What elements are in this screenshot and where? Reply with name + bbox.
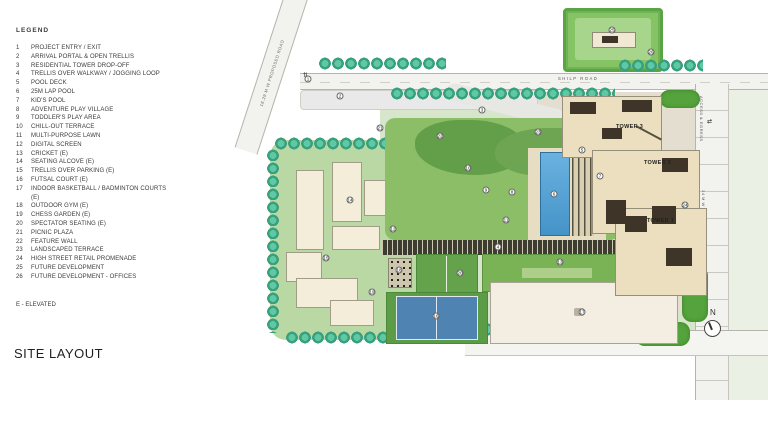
legend-item-label: INDOOR BASKETBALL / BADMINTON COURTS (E) <box>31 185 174 203</box>
plan-badge-7: 7 <box>597 173 604 180</box>
legend-item-1: 1PROJECT ENTRY / EXIT <box>16 44 174 53</box>
legend-item-label: DIGITAL SCREEN <box>31 141 174 150</box>
plan-badge-12: 12 <box>390 226 397 233</box>
legend-item-number: 11 <box>16 132 31 141</box>
legend-item-number: 16 <box>16 176 31 185</box>
legend-item-label: SPECTATOR SEATING (E) <box>31 220 174 229</box>
plan-badge-19: 19 <box>369 289 376 296</box>
legend-item-number: 5 <box>16 79 31 88</box>
legend-item-16: 16FUTSAL COURT (E) <box>16 176 174 185</box>
legend-item-number: 8 <box>16 106 31 115</box>
legend-item-6: 625M LAP POOL <box>16 88 174 97</box>
legend-item-label: FEATURE WALL <box>31 238 174 247</box>
legend-item-8: 8ADVENTURE PLAY VILLAGE <box>16 106 174 115</box>
legend-item-17: 17INDOOR BASKETBALL / BADMINTON COURTS (… <box>16 185 174 203</box>
legend-item-12: 12DIGITAL SCREEN <box>16 141 174 150</box>
site-layout-drawing: LEGEND 1PROJECT ENTRY / EXIT2ARRIVAL POR… <box>0 0 768 427</box>
legend-item-11: 11MULTI-PURPOSE LAWN <box>16 132 174 141</box>
compass-icon <box>704 320 721 337</box>
legend-item-label: ARRIVAL PORTAL & OPEN TRELLIS <box>31 53 174 62</box>
legend-item-2: 2ARRIVAL PORTAL & OPEN TRELLIS <box>16 53 174 62</box>
legend-item-number: 17 <box>16 185 31 194</box>
plan-badge-15: 15 <box>323 255 330 262</box>
plan-badge-16: 16 <box>433 313 440 320</box>
plan-badge-6: 6 <box>551 191 558 198</box>
legend-item-20: 20SPECTATOR SEATING (E) <box>16 220 174 229</box>
compass-north-label: N <box>710 308 716 317</box>
legend-item-number: 26 <box>16 273 31 282</box>
legend-item-label: TRELLIS OVER WALKWAY / JOGGING LOOP <box>31 70 174 79</box>
plan-badge-11: 11 <box>503 217 510 224</box>
legend-item-26: 26FUTURE DEVELOPMENT - OFFICES <box>16 273 174 282</box>
legend-item-label: FUTURE DEVELOPMENT <box>31 264 174 273</box>
legend-item-label: TODDLER'S PLAY AREA <box>31 114 174 123</box>
legend-note: E - ELEVATED <box>16 302 56 308</box>
legend-item-label: OUTDOOR GYM (E) <box>31 202 174 211</box>
legend-item-number: 24 <box>16 255 31 264</box>
legend-item-label: MULTI-PURPOSE LAWN <box>31 132 174 141</box>
legend-item-label: LANDSCAPED TERRACE <box>31 246 174 255</box>
legend-item-7: 7KID'S POOL <box>16 97 174 106</box>
plan-badge-13: 13 <box>557 259 564 266</box>
legend-item-label: TRELLIS OVER PARKING (E) <box>31 167 174 176</box>
legend-item-number: 4 <box>16 70 31 79</box>
plan-badge-25: 25 <box>609 27 616 34</box>
plan-badge-22: 22 <box>437 133 444 140</box>
plan-badge-8: 8 <box>509 189 516 196</box>
legend-item-21: 21PICNIC PLAZA <box>16 229 174 238</box>
legend-item-label: CHESS GARDEN (E) <box>31 211 174 220</box>
legend-item-number: 15 <box>16 167 31 176</box>
legend-item-label: PROJECT ENTRY / EXIT <box>31 44 174 53</box>
legend-item-number: 19 <box>16 211 31 220</box>
legend-item-label: RESIDENTIAL TOWER DROP-OFF <box>31 62 174 71</box>
legend-title: LEGEND <box>16 27 49 34</box>
plan-badge-3: 3 <box>479 107 486 114</box>
legend-item-label: CRICKET (E) <box>31 150 174 159</box>
legend-item-label: 25M LAP POOL <box>31 88 174 97</box>
legend-item-label: SEATING ALCOVE (E) <box>31 158 174 167</box>
legend-item-24: 24HIGH STREET RETAIL PROMENADE <box>16 255 174 264</box>
legend-item-number: 12 <box>16 141 31 150</box>
legend-item-number: 7 <box>16 97 31 106</box>
legend-item-number: 14 <box>16 158 31 167</box>
legend-item-number: 1 <box>16 44 31 53</box>
plan-badge-10: 10 <box>465 165 472 172</box>
plan-badge-14: 14 <box>347 197 354 204</box>
plan-badge-21: 21 <box>377 125 384 132</box>
legend-item-number: 13 <box>16 150 31 159</box>
legend-item-number: 20 <box>16 220 31 229</box>
legend-item-number: 23 <box>16 246 31 255</box>
site-plan: 18.29 M W PROPOSED ROAD SHILP ROAD ACCES… <box>230 0 768 400</box>
legend-item-label: POOL DECK <box>31 79 174 88</box>
page-title: SITE LAYOUT <box>14 346 103 361</box>
legend-item-number: 10 <box>16 123 31 132</box>
legend-item-23: 23LANDSCAPED TERRACE <box>16 246 174 255</box>
plan-badge-4: 4 <box>495 244 502 251</box>
legend-item-number: 3 <box>16 62 31 71</box>
plan-badge-17: 17 <box>579 309 586 316</box>
legend-item-18: 18OUTDOOR GYM (E) <box>16 202 174 211</box>
badges-layer: 1234567891011121314151617181920212223242… <box>230 0 768 400</box>
plan-badge-20: 20 <box>457 270 464 277</box>
legend-list: 1PROJECT ENTRY / EXIT2ARRIVAL PORTAL & O… <box>16 44 174 282</box>
legend-item-label: CHILL-OUT TERRACE <box>31 123 174 132</box>
legend-item-5: 5POOL DECK <box>16 79 174 88</box>
plan-badge-26: 26 <box>648 49 655 56</box>
legend-item-10: 10CHILL-OUT TERRACE <box>16 123 174 132</box>
legend-item-14: 14SEATING ALCOVE (E) <box>16 158 174 167</box>
legend-item-9: 9TODDLER'S PLAY AREA <box>16 114 174 123</box>
legend-item-15: 15TRELLIS OVER PARKING (E) <box>16 167 174 176</box>
plan-badge-2: 2 <box>337 93 344 100</box>
legend-item-19: 19CHESS GARDEN (E) <box>16 211 174 220</box>
legend-item-label: ADVENTURE PLAY VILLAGE <box>31 106 174 115</box>
plan-badge-9: 9 <box>483 187 490 194</box>
legend-item-label: FUTURE DEVELOPMENT - OFFICES <box>31 273 174 282</box>
legend-item-number: 21 <box>16 229 31 238</box>
legend-item-number: 6 <box>16 88 31 97</box>
plan-badge-1: 1 <box>305 76 312 83</box>
legend-item-label: PICNIC PLAZA <box>31 229 174 238</box>
legend-item-number: 25 <box>16 264 31 273</box>
legend-item-4: 4TRELLIS OVER WALKWAY / JOGGING LOOP <box>16 70 174 79</box>
legend-item-3: 3RESIDENTIAL TOWER DROP-OFF <box>16 62 174 71</box>
legend-item-22: 22FEATURE WALL <box>16 238 174 247</box>
legend-item-label: FUTSAL COURT (E) <box>31 176 174 185</box>
legend-item-number: 22 <box>16 238 31 247</box>
plan-badge-23: 23 <box>535 129 542 136</box>
plan-badge-5: 5 <box>579 147 586 154</box>
legend-item-label: HIGH STREET RETAIL PROMENADE <box>31 255 174 264</box>
plan-badge-24: 24 <box>682 202 689 209</box>
legend-item-number: 2 <box>16 53 31 62</box>
legend-item-label: KID'S POOL <box>31 97 174 106</box>
legend-item-13: 13CRICKET (E) <box>16 150 174 159</box>
legend-item-25: 25FUTURE DEVELOPMENT <box>16 264 174 273</box>
plan-badge-18: 18 <box>396 267 403 274</box>
legend-item-number: 9 <box>16 114 31 123</box>
legend-item-number: 18 <box>16 202 31 211</box>
